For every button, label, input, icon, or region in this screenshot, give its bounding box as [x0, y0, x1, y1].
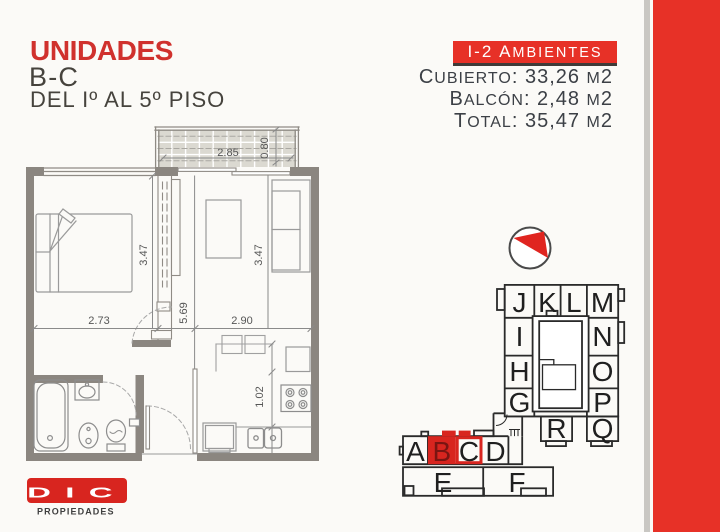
svg-text:C: C [459, 436, 479, 467]
svg-text:H: H [509, 356, 529, 387]
svg-text:J: J [513, 287, 527, 318]
svg-text:A: A [406, 436, 425, 467]
svg-text:0.80: 0.80 [259, 137, 271, 158]
svg-text:L: L [566, 287, 582, 318]
svg-text:G: G [509, 387, 531, 418]
svg-text:2.90: 2.90 [231, 315, 252, 327]
svg-text:F: F [508, 467, 525, 498]
svg-text:2.73: 2.73 [88, 315, 109, 327]
svg-text:D: D [485, 436, 505, 467]
svg-text:3.47: 3.47 [253, 244, 265, 265]
svg-text:1.02: 1.02 [254, 386, 266, 407]
svg-text:I: I [516, 321, 524, 352]
svg-text:R: R [546, 413, 566, 444]
svg-text:M: M [591, 287, 614, 318]
svg-text:DIC: DIC [27, 485, 127, 501]
svg-text:B: B [432, 436, 451, 467]
svg-text:E: E [434, 467, 453, 498]
svg-text:N: N [592, 321, 612, 352]
svg-text:Q: Q [592, 413, 614, 444]
svg-text:PROPIEDADES: PROPIEDADES [37, 507, 115, 517]
svg-text:5.69: 5.69 [178, 302, 190, 323]
svg-text:3.47: 3.47 [138, 244, 150, 265]
svg-text:O: O [592, 356, 614, 387]
svg-text:2.85: 2.85 [217, 147, 238, 159]
svg-text:K: K [538, 287, 557, 318]
